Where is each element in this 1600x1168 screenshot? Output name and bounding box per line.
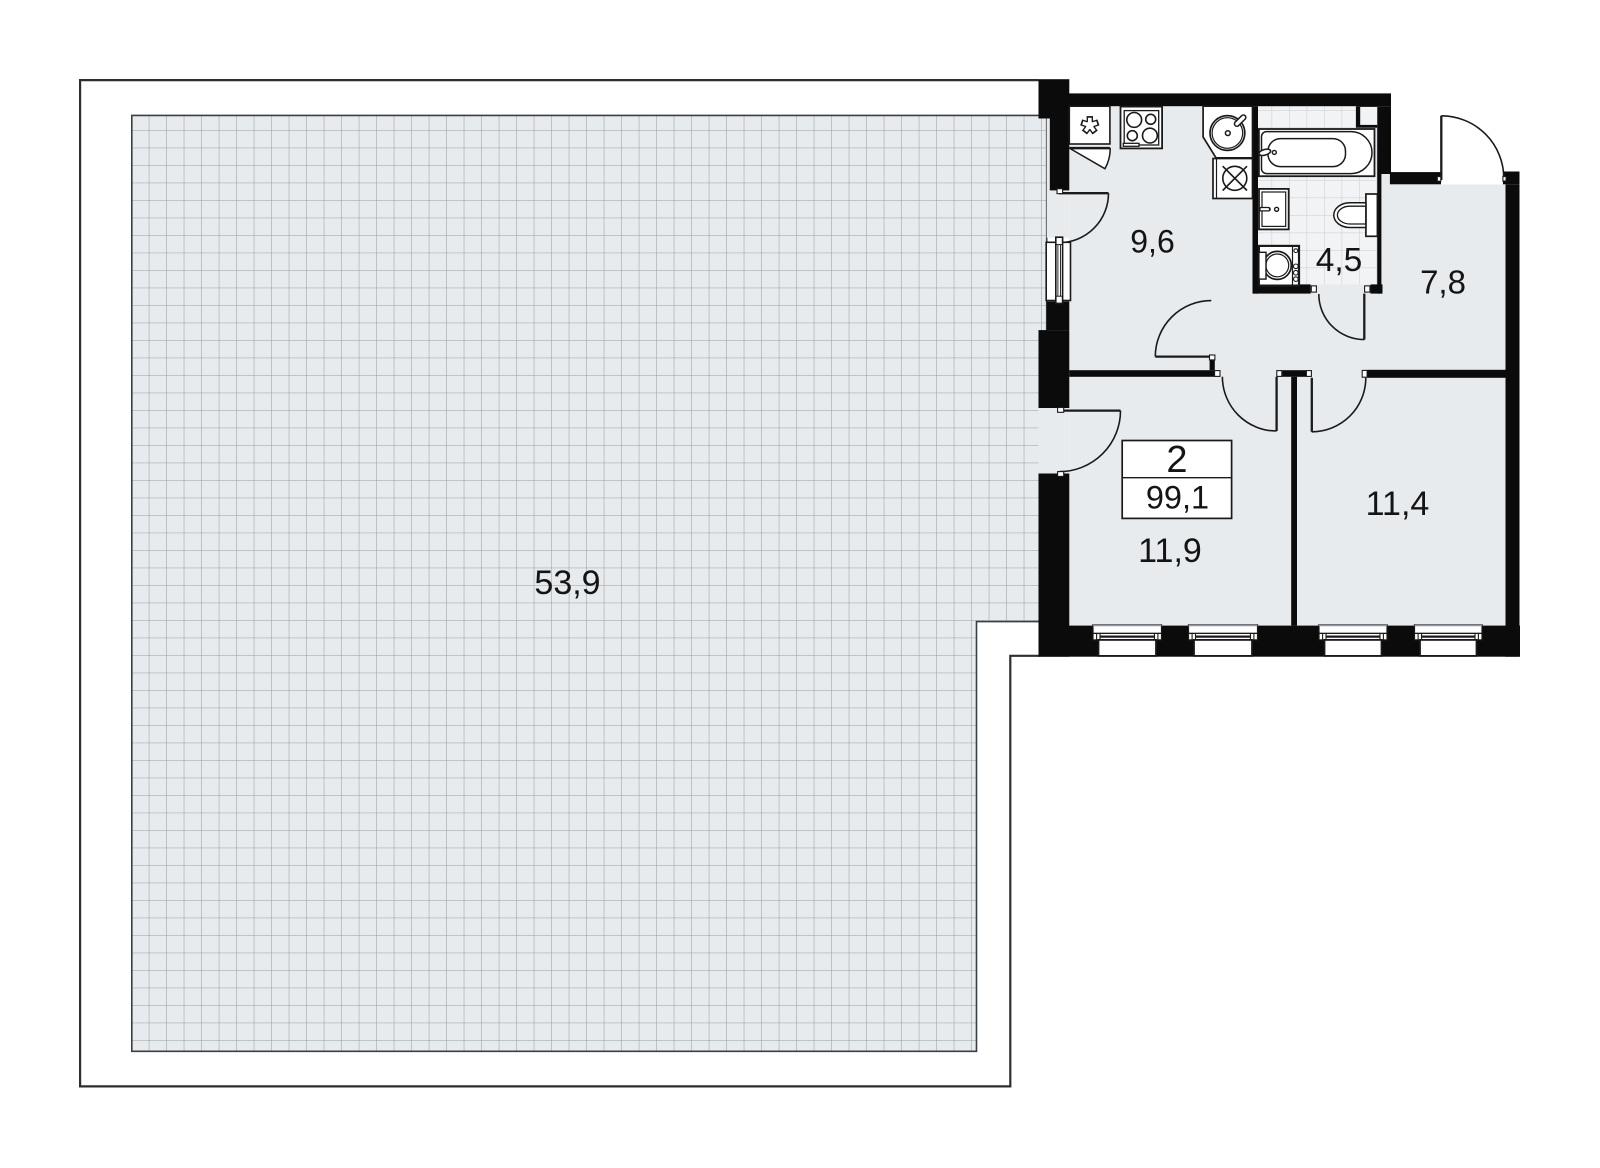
svg-text:53,9: 53,9 [534, 564, 600, 602]
svg-text:11,4: 11,4 [1366, 485, 1430, 523]
svg-text:4,5: 4,5 [1316, 242, 1363, 279]
svg-text:9,6: 9,6 [1130, 224, 1174, 260]
svg-text:11,9: 11,9 [1138, 532, 1202, 570]
svg-text:2: 2 [1166, 439, 1187, 481]
svg-text:7,8: 7,8 [1420, 264, 1466, 301]
svg-text:99,1: 99,1 [1146, 480, 1209, 516]
